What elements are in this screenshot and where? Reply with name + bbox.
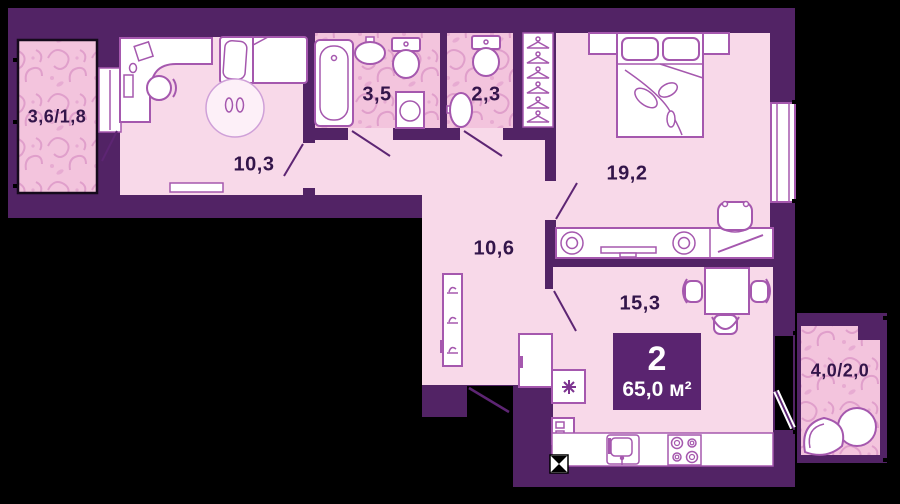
vent-shaft-icon — [550, 455, 568, 473]
wardrobe-icon — [523, 33, 553, 127]
balcony-right-area-label: 4,0/2,0 — [811, 361, 870, 382]
kitchen-sink-icon — [607, 435, 639, 465]
toilet-area-label: 2,3 — [471, 84, 500, 107]
armchair-icon — [718, 202, 752, 233]
monitor-icon — [124, 75, 133, 97]
living-room-area-label: 10,3 — [234, 154, 275, 177]
hallway-area-label: 10,6 — [474, 238, 515, 261]
kitchen-living-area-label: 15,3 — [620, 293, 661, 316]
toilet-icon — [392, 38, 420, 78]
nightstand-icon — [589, 33, 617, 54]
dining-chair-icon — [751, 279, 770, 303]
dining-chair-icon — [712, 315, 739, 334]
apartment-area-badge: 2 65,0 м² — [613, 333, 701, 410]
fridge-icon — [552, 370, 585, 403]
bathtub-icon — [315, 40, 353, 126]
shelf-icon — [170, 183, 223, 192]
stove-icon — [668, 435, 701, 465]
dining-chair-icon — [683, 279, 702, 303]
floorplan-canvas: 3,6/1,8 10,3 3,5 2,3 19,2 10,6 15,3 4,0/… — [0, 0, 900, 504]
rooms-count: 2 — [648, 342, 667, 378]
balcony-door-icon — [775, 336, 793, 430]
rug-icon — [206, 79, 264, 137]
washing-machine-icon — [396, 92, 424, 128]
mouse-icon — [130, 64, 137, 73]
total-area: 65,0 м² — [622, 379, 691, 401]
shoe-rack-icon — [440, 274, 462, 366]
double-bed-icon — [617, 33, 703, 137]
desk-chair-icon — [147, 76, 171, 100]
wc-toilet-icon — [472, 36, 500, 76]
entrance-door-icon — [467, 386, 513, 417]
balcony-right — [797, 313, 887, 463]
nightstand-icon — [703, 33, 729, 54]
tv-icon — [601, 247, 656, 253]
floorplan-drawing — [0, 0, 900, 504]
entry-closet-icon — [519, 334, 552, 387]
single-bed-icon — [220, 37, 307, 83]
bathroom-area-label: 3,5 — [362, 84, 391, 107]
kitchen-counter-icon — [552, 433, 773, 466]
bedroom-area-label: 19,2 — [607, 163, 648, 186]
hallway-floor — [315, 140, 545, 385]
tv-stand-icon — [556, 228, 773, 258]
bedroom-window-icon — [771, 103, 795, 202]
loggia-left-area-label: 3,6/1,8 — [28, 107, 87, 128]
